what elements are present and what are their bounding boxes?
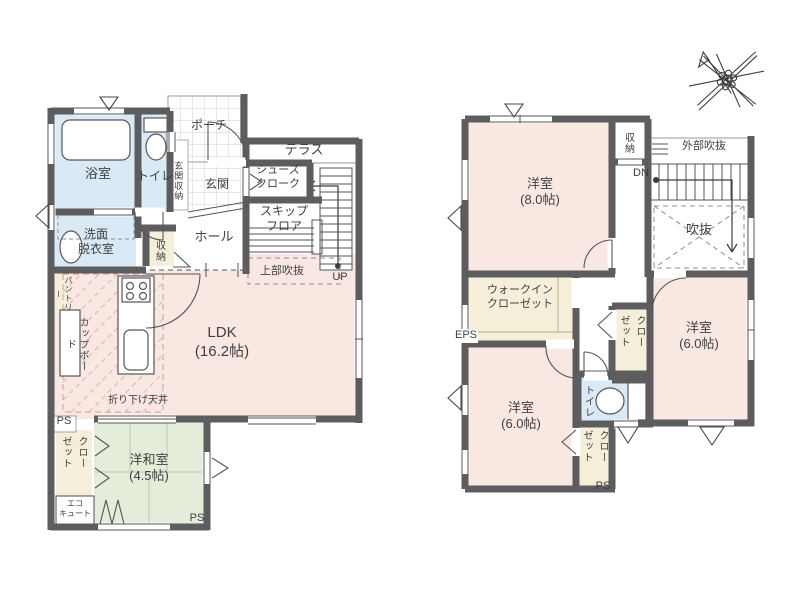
label-ecocute: エコキュート bbox=[57, 499, 93, 519]
label-japanese-room: 洋和室(4.5帖) bbox=[94, 452, 204, 485]
label-room6-left: 洋室(6.0帖) bbox=[466, 400, 576, 433]
label-genkan: 玄関 bbox=[194, 177, 240, 192]
label-storage-1f: 収納 bbox=[152, 234, 165, 268]
floorplan-page: 浴室 トイレ 玄関収納 ポーチ テラス 玄関 シューズクローク 洗面脱衣室 ホー… bbox=[0, 0, 800, 600]
label-eps: EPS bbox=[454, 329, 478, 343]
toilet-tank-icon bbox=[144, 118, 168, 132]
label-hall: ホール bbox=[184, 229, 244, 245]
label-closet-bottom: クローゼット bbox=[579, 430, 610, 463]
label-porch: ポーチ bbox=[182, 118, 236, 133]
label-ps-bottom: PS bbox=[184, 512, 210, 526]
label-storage-2f: 収納 bbox=[621, 126, 634, 160]
label-dropped-ceiling: 折り下げ天井 bbox=[96, 395, 180, 408]
label-closet-1f: クローゼット bbox=[58, 436, 89, 469]
label-void: 吹抜 bbox=[670, 222, 728, 238]
label-bath: 浴室 bbox=[66, 166, 130, 182]
label-wic: ウォークインクローゼット bbox=[468, 284, 572, 312]
label-room6-right: 洋室(6.0帖) bbox=[650, 320, 748, 353]
compass-icon bbox=[680, 36, 773, 123]
label-toilet-2f: トイレ bbox=[581, 379, 594, 423]
label-terrace: テラス bbox=[272, 142, 336, 158]
label-washroom: 洗面脱衣室 bbox=[58, 227, 134, 257]
label-up: UP bbox=[326, 271, 354, 285]
label-cupboard: カップボード bbox=[63, 313, 88, 375]
floorplan-geometry bbox=[0, 0, 800, 600]
label-ldk: LDK(16.2帖) bbox=[170, 324, 274, 362]
label-ps-left: PS bbox=[51, 415, 77, 429]
kitchen-sink-icon bbox=[124, 330, 148, 370]
label-outer-void: 外部吹抜 bbox=[666, 140, 742, 154]
label-ps-2f: PS bbox=[590, 480, 616, 494]
label-skip-floor: スキップフロア bbox=[246, 204, 322, 234]
label-genkan-storage: 玄関収納 bbox=[172, 150, 183, 212]
toilet-bowl-icon bbox=[146, 134, 166, 160]
label-dn: DN bbox=[628, 167, 654, 181]
label-closet-mid: クローゼット bbox=[616, 315, 647, 348]
label-room8: 洋室(8.0帖) bbox=[478, 176, 602, 209]
label-shoes-cloak: シューズクローク bbox=[246, 164, 310, 192]
label-pantry: パントリー bbox=[53, 272, 73, 316]
bathtub-icon bbox=[62, 120, 130, 160]
label-upper-void: 上部吹抜 bbox=[250, 265, 314, 279]
